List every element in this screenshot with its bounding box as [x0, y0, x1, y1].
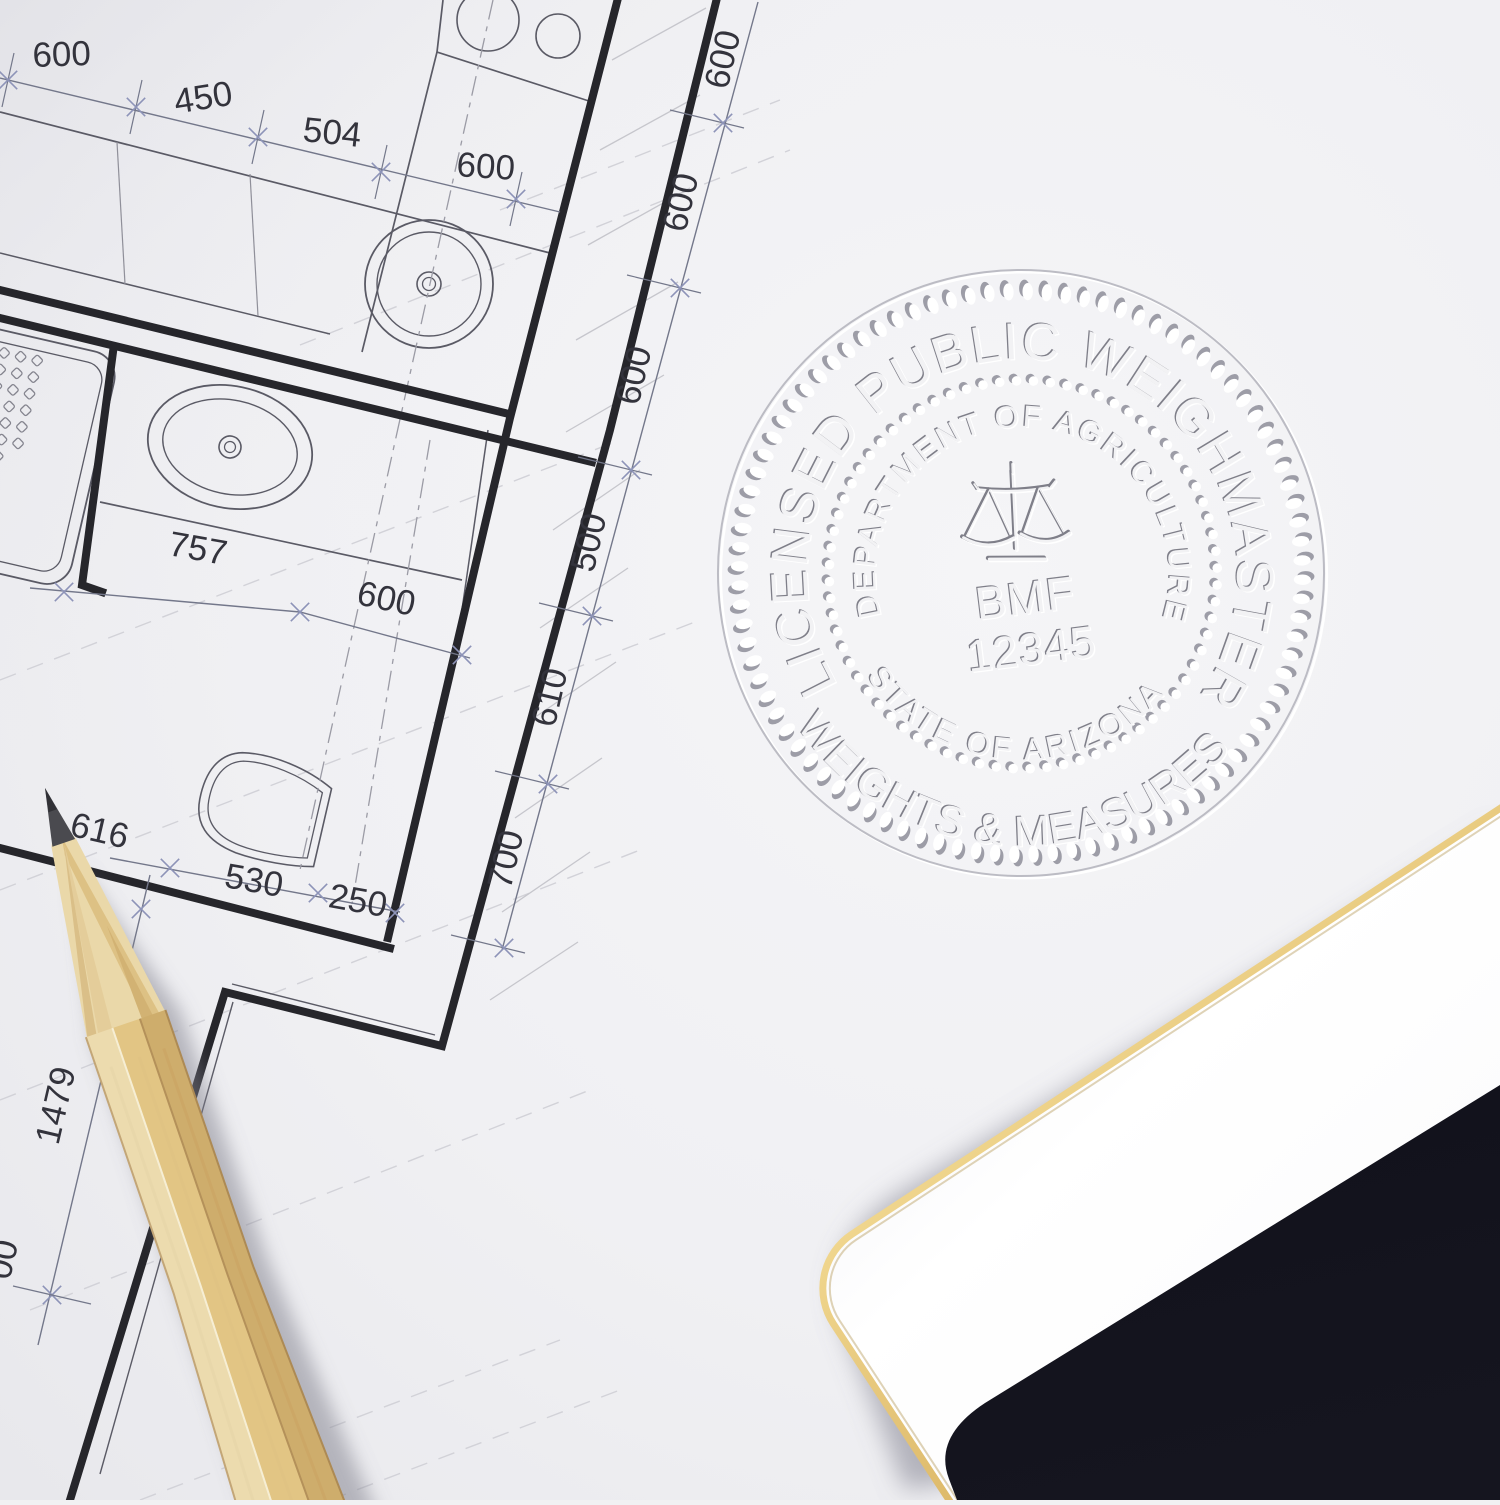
svg-text:600: 600 [455, 145, 516, 188]
svg-text:504: 504 [301, 110, 363, 155]
svg-text:600: 600 [32, 34, 92, 75]
